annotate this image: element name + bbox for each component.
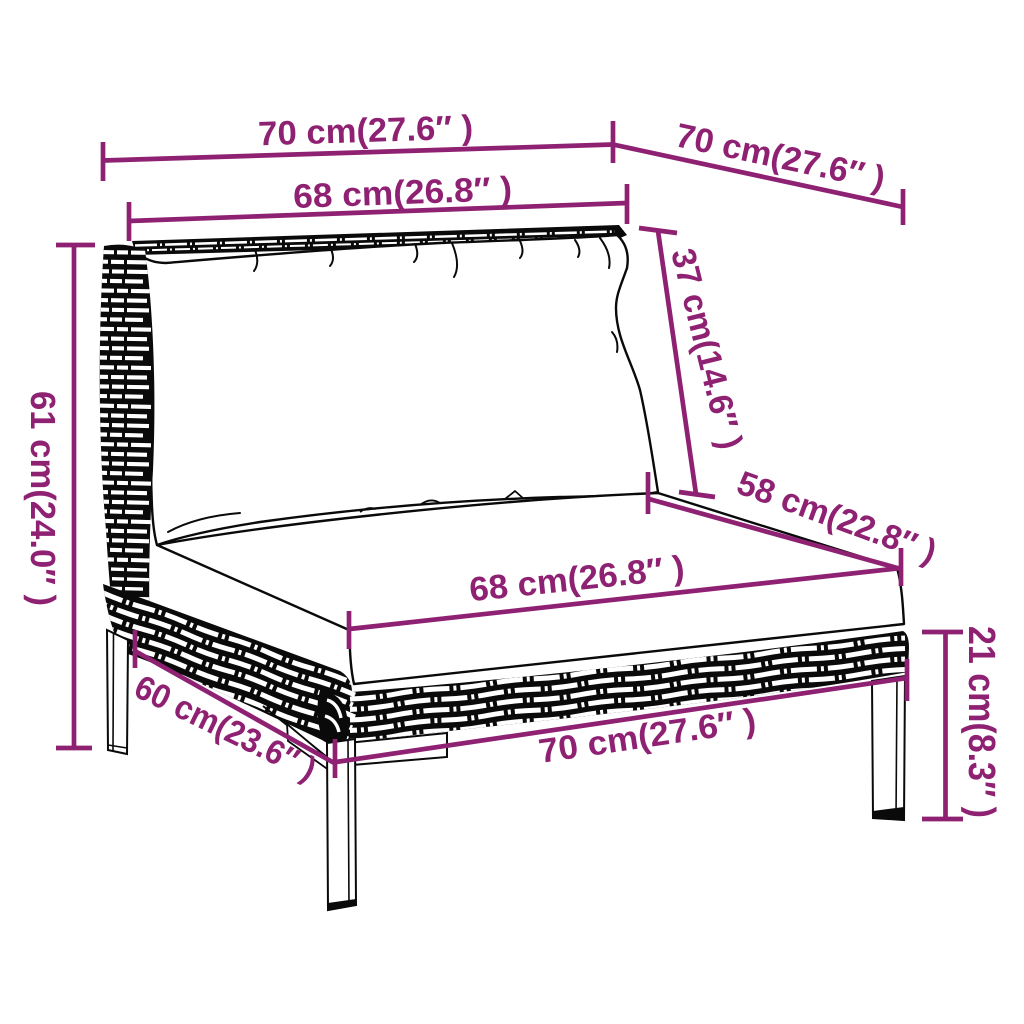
- svg-text:70 cm(27.6″ ): 70 cm(27.6″ ): [258, 109, 474, 154]
- svg-text:61 cm(24.0″ ): 61 cm(24.0″ ): [23, 391, 62, 606]
- svg-text:21 cm(8.3″ ): 21 cm(8.3″ ): [960, 626, 1002, 818]
- svg-text:68 cm(26.8″ ): 68 cm(26.8″ ): [292, 170, 512, 216]
